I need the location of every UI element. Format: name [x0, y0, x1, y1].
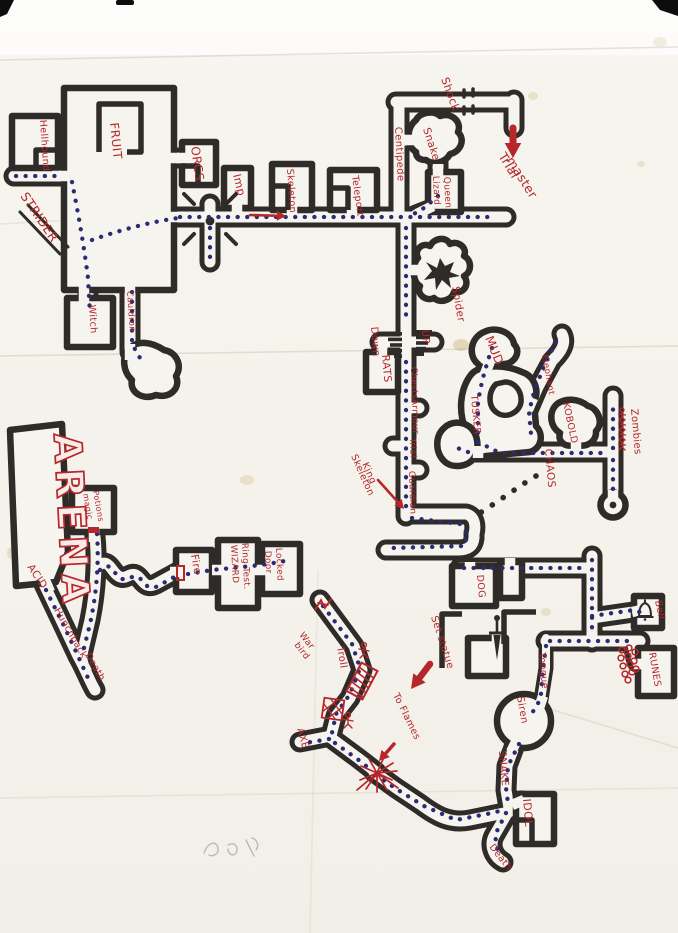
secret-dot-trail	[472, 476, 536, 518]
room-great-hall	[64, 88, 174, 290]
label-armour: Armour	[409, 399, 420, 434]
dungeon-map: HellhoundFRUITORCSImpSkeletonTeleportSTR…	[0, 0, 678, 933]
label-to-flames: To Flames	[390, 691, 423, 742]
label-locked: Locked	[273, 548, 285, 582]
label-chaos: CHAOS	[542, 448, 557, 488]
label-arena: ARENA	[45, 432, 98, 610]
dead-end-dot	[610, 502, 617, 509]
label-trial: Trial	[407, 437, 418, 458]
chamber-island	[490, 382, 521, 415]
pencil-scribble	[204, 838, 258, 856]
label-lizard: Lizard	[430, 176, 442, 206]
set-statue-arrow	[411, 664, 430, 689]
label-up: UP	[419, 329, 431, 344]
to-flames-arrow	[379, 744, 394, 761]
label-dog: DOG	[474, 574, 487, 598]
label-chests: Chests	[408, 367, 419, 399]
label-witch: Witch	[86, 304, 99, 333]
scanned-map-page: HellhoundFRUITORCSImpSkeletonTeleportSTR…	[0, 0, 678, 933]
label-rats: RATS	[379, 354, 393, 383]
label-guardian: Guardian	[406, 471, 418, 515]
label-door: Door	[262, 551, 273, 574]
label-zombies: Zombies	[628, 408, 643, 455]
label-idol: IDOL	[520, 798, 535, 828]
label-wizard: WIZARD	[228, 545, 240, 584]
label-queen: Queen	[441, 177, 453, 209]
